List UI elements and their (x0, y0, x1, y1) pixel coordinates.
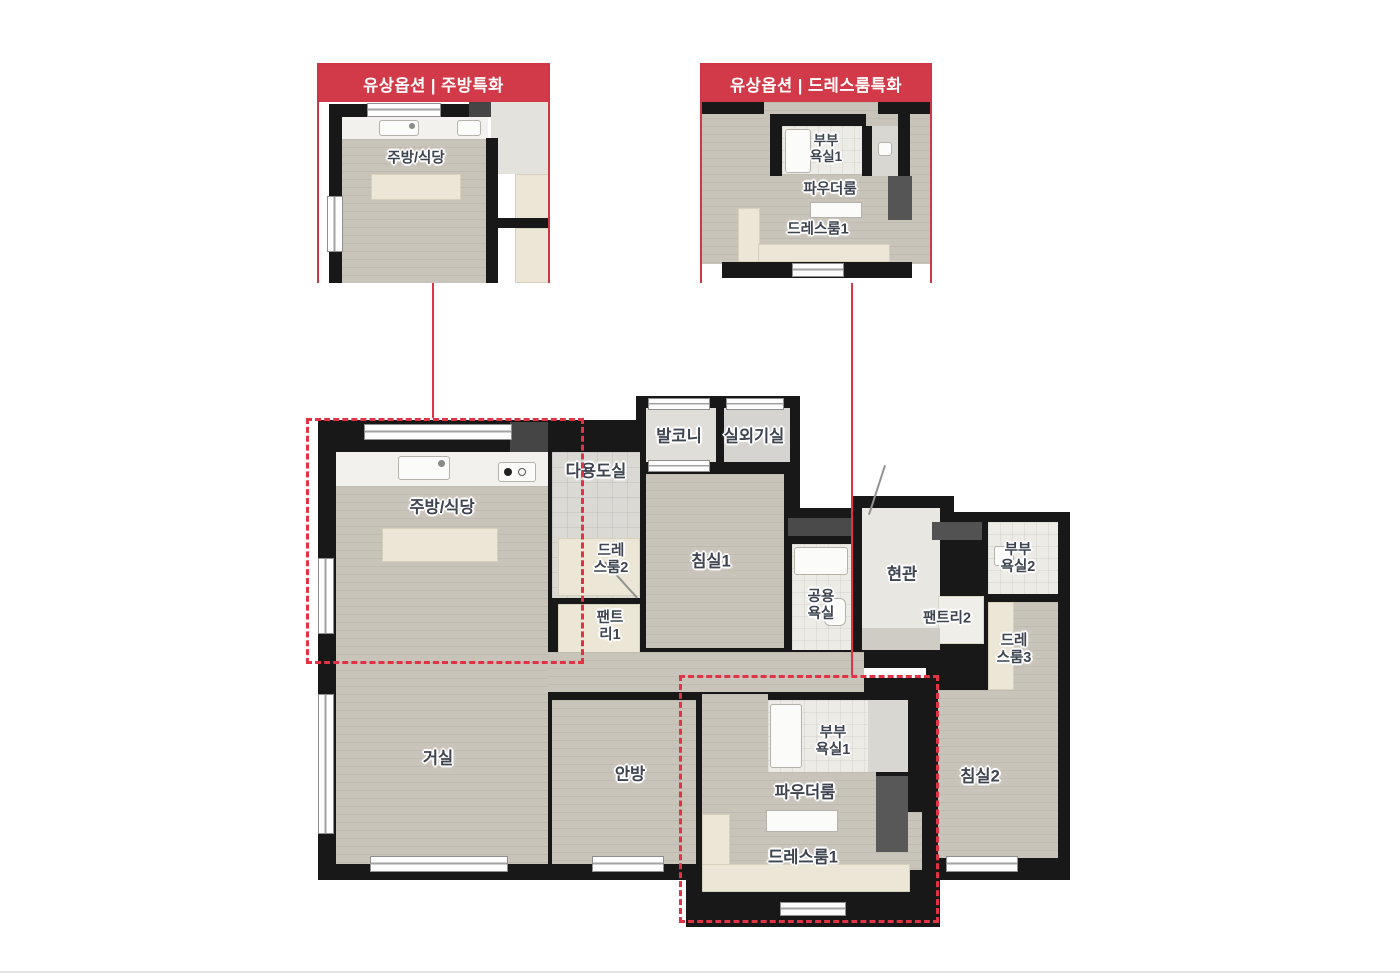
room-label-bedroom2: 침실2 (960, 767, 1000, 786)
window (726, 398, 784, 410)
wall-block (486, 138, 498, 283)
window (592, 856, 664, 872)
room-label-pantry1: 팬트 리1 (597, 610, 624, 644)
wall-block (498, 218, 548, 228)
room-label-couple-bath2: 부부 욕실2 (1001, 542, 1036, 576)
kitchen-option-connector (432, 283, 434, 418)
closet (469, 102, 491, 117)
wall-block (862, 126, 872, 176)
inset-dressroom1-shelf-left (738, 208, 760, 262)
inset-dressroom1-shelf-bottom (758, 244, 890, 262)
inset-dressroom-option-title: 유상옵션 | 드레스룸특화 (702, 65, 930, 102)
window (792, 263, 844, 277)
inset-kitchen-option-plan: 주방/식당 (319, 102, 548, 283)
entrance-mat (862, 628, 940, 650)
dressroom-option-connector (851, 283, 853, 675)
footer-divider (0, 971, 1400, 973)
inset-powder-vanity (810, 202, 862, 218)
closet (788, 518, 852, 536)
inset-bath-sink (878, 142, 892, 156)
window (648, 398, 710, 410)
room-label-outdoor-unit: 실외기실 (724, 427, 785, 446)
room-label-dressroom3: 드레 스룸3 (997, 633, 1032, 667)
window (648, 460, 710, 472)
room-label-balcony: 발코니 (656, 427, 702, 446)
inset-kitchen-stove (457, 120, 481, 136)
window (370, 856, 508, 872)
wall-block (702, 102, 764, 114)
room-label-bedroom1: 침실1 (691, 552, 731, 571)
inset-wardrobe (888, 176, 912, 220)
kitchen-option-dashed-box (306, 418, 584, 664)
dressroom-option-dashed-box (679, 675, 939, 923)
window (367, 103, 441, 117)
floorplan-image: 주방/식당 다용도실 발코니 실외기실 침실1 드레 스룸2 팬트 리1 공용 … (0, 0, 1400, 976)
inset-couple-bath1-tub (785, 129, 811, 173)
room-label-entrance: 현관 (887, 565, 917, 584)
room-label-common-bath: 공용 욕실 (808, 589, 835, 623)
window (946, 856, 1018, 872)
room-label-master: 안방 (615, 765, 645, 784)
inset-utility-floor (491, 102, 548, 174)
inset-label-powder: 파우더룸 (803, 181, 856, 198)
room-label-dressroom2: 드레 스룸2 (594, 543, 629, 577)
inset-shelf (515, 228, 548, 283)
room-label-living: 거실 (423, 749, 453, 768)
wall-block (898, 114, 910, 176)
inset-kitchen-option-title: 유상옵션 | 주방특화 (319, 65, 548, 102)
inset-kitchen-room-label: 주방/식당 (387, 150, 444, 167)
inset-kitchen-faucet (409, 123, 415, 129)
inset-shelf (515, 174, 548, 220)
wall-block (329, 104, 342, 283)
wall-block (878, 102, 930, 114)
common-bath-tub (794, 547, 848, 575)
window (327, 196, 343, 252)
inset-kitchen-island (371, 174, 461, 200)
window (318, 694, 334, 834)
room-label-pantry2: 팬트리2 (923, 610, 971, 627)
inset-label-couple-bath1: 부부 욕실1 (810, 133, 842, 165)
wall-block (778, 114, 866, 126)
inset-kitchen-option: 유상옵션 | 주방특화 주방/식당 (317, 63, 550, 283)
inset-outside-gap (702, 278, 930, 283)
inset-dressroom-option-plan: 부부 욕실1 파우더룸 드레스룸1 (702, 102, 930, 283)
closet (932, 522, 982, 540)
inset-dressroom-option: 유상옵션 | 드레스룸특화 부부 욕실1 파우더룸 드레스룸1 (700, 63, 932, 283)
inset-label-dressroom1: 드레스룸1 (787, 221, 848, 238)
